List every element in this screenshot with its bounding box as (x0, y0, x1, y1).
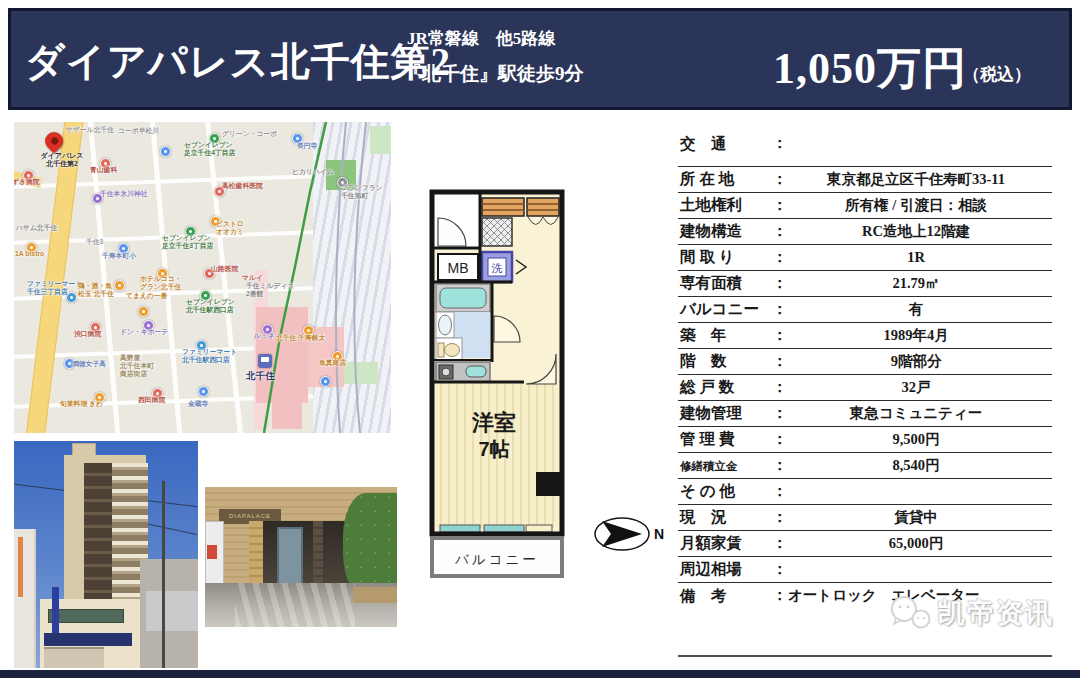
row-label: 周辺相場 (678, 559, 772, 580)
row-value: 1989年4月 (786, 326, 1052, 345)
row-label: 月額家賃 (678, 533, 772, 554)
entrance-opening (257, 521, 357, 583)
row-value: 32戸 (786, 378, 1052, 397)
row-label: 築 年 (678, 325, 772, 346)
row-value: 9階部分 (786, 352, 1052, 371)
vending-machine-panel (207, 545, 217, 559)
property-map-label: ダイアパレス 北千住第2 (30, 152, 94, 169)
planter-wall (353, 587, 397, 603)
balcony-label: バルコニー (454, 552, 539, 567)
map-poi-pin (320, 376, 331, 387)
map-poi-label: 旬菜料理 きわ (60, 400, 103, 408)
brick-pillar (249, 521, 263, 583)
entrance-photo: DIAPALACE (205, 487, 397, 627)
map-poi-label: ドン・キホーテ (120, 328, 168, 336)
row-value: 東急コミュニティー (786, 404, 1052, 423)
map-poi-label: グリーン・コーポ (222, 130, 277, 138)
shop-sign (44, 633, 132, 646)
flyer-page: ダイアパレス北千住第2 JR常磐線 他5路線 『北千住』駅徒歩9分 1,050万… (0, 0, 1080, 678)
map-poi-label: ホテルココ・ グラン北千住 (140, 275, 182, 291)
map-poi-label: 西田病院 (138, 396, 165, 404)
table-row: 専有面積：21.79㎡ (678, 271, 1052, 297)
table-row: 修繕積立金：8,540円 (678, 453, 1052, 479)
building-exterior-photo (14, 441, 198, 668)
glass-door (277, 527, 303, 585)
row-colon: ： (772, 430, 786, 449)
row-value: 有 (786, 300, 1052, 319)
table-row: 建物構造：RC造地上12階建 (678, 219, 1052, 245)
map-poi-pin (160, 146, 171, 157)
property-title: ダイアパレス北千住第2 (25, 35, 451, 89)
map-poi-label: 千住3 (86, 238, 103, 246)
row-colon: ： (772, 456, 786, 475)
map-poi-label: セブンイレブン 足立千住4丁目店 (184, 141, 235, 157)
map-poi-label: 青山歯科 (90, 166, 117, 174)
map-poi-label: ビストロ オオカミ (216, 220, 244, 236)
row-colon: ： (772, 404, 786, 423)
map-poi-label: フランフラン 千住旭町 (341, 184, 383, 200)
tax-note: （税込） (963, 63, 1031, 86)
station-name-label: 北千住 (246, 370, 275, 383)
construction-fence (146, 591, 198, 631)
compass-n-label: N (654, 526, 664, 542)
map-poi-label: 魚真商店 (319, 359, 346, 367)
floor-plan: MB 洗 洋室 7帖 (424, 184, 570, 586)
watermark-text: 凯帝资讯 (938, 595, 1054, 631)
row-label: 交 通 (678, 134, 772, 155)
location-map: ずき病院青山歯科セブンイレブン 足立千住4丁目店長円寺高松歯科医院ヒカリハイム千… (14, 122, 391, 433)
shop-front (44, 647, 104, 668)
map-poi-label: 長円寺 (297, 142, 317, 150)
row-colon: ： (772, 134, 786, 153)
row-label: 間 取 り (678, 247, 772, 268)
map-poi-label: 山路医院 (211, 265, 238, 273)
row-colon: ： (772, 352, 786, 371)
table-row: 周辺相場： (678, 557, 1052, 583)
property-spec-table: 交 通：所 在 地：東京都足立区千住寿町33-11土地権利：所有権 / 引渡日：… (678, 128, 1052, 655)
row-label: 土地権利 (678, 195, 772, 216)
map-poi-pin (114, 280, 125, 291)
row-value: 所有権 / 引渡日：相談 (786, 196, 1052, 215)
table-row: 現 況：賃貸中 (678, 505, 1052, 531)
page-bottom-border (0, 670, 1080, 678)
rail-line-text: JR常磐線 他5路線 (407, 27, 555, 50)
lower-building-windows (48, 609, 124, 623)
map-poi-pin (138, 306, 149, 317)
row-label: 専有面積 (678, 273, 772, 294)
table-row: バルコニー：有 (678, 297, 1052, 323)
table-row: 建物管理：東急コミュニティー (678, 401, 1052, 427)
row-value: 8,540円 (786, 456, 1052, 475)
row-colon: ： (772, 222, 786, 241)
row-colon: ： (772, 300, 786, 319)
table-row: 階 数：9階部分 (678, 349, 1052, 375)
map-poi-label: セブンイレブン 北千住駅西口店 (186, 298, 235, 314)
row-colon: ： (772, 326, 786, 345)
map-poi-label: ずき病院 (14, 178, 40, 186)
map-poi-label: セブンイレブン 足立千住3丁目店 (162, 234, 213, 250)
header-band: ダイアパレス北千住第2 JR常磐線 他5路線 『北千住』駅徒歩9分 1,050万… (8, 8, 1072, 110)
row-value: 1R (786, 249, 1052, 266)
row-colon: ： (772, 508, 786, 527)
row-label: バルコニー (678, 299, 772, 320)
shop-banner (52, 587, 59, 639)
row-colon: ： (772, 378, 786, 397)
watermark: 凯帝资讯 (888, 594, 1054, 632)
map-poi-label: コーポ早松川 (118, 127, 159, 135)
row-label: 修繕積立金 (678, 457, 772, 474)
chat-bubbles-icon (888, 594, 934, 632)
tower-balcony-shadow (84, 463, 112, 605)
map-poi-label: 1A bistro (15, 250, 44, 258)
room-size-label: 7帖 (478, 438, 509, 460)
map-poi-label: 高松歯科医院 (222, 182, 263, 190)
row-colon: ： (772, 534, 786, 553)
table-row: 所 在 地：東京都足立区千住寿町33-11 (678, 167, 1052, 193)
washer-label: 洗 (492, 262, 503, 274)
mb-label: MB (448, 260, 469, 276)
pavement-tiles (235, 583, 355, 627)
row-label: 総 戸 数 (678, 377, 772, 398)
inner-pillar (313, 521, 323, 583)
utility-pole (162, 481, 165, 668)
row-label: 現 況 (678, 507, 772, 528)
table-row: 交 通： (678, 128, 1052, 167)
row-colon: ： (772, 560, 786, 579)
map-poi-label: 潤徳女子高 (72, 360, 106, 368)
map-poi-label: ルミネ (254, 332, 275, 340)
station-walk-text: 『北千住』駅徒歩9分 (403, 61, 584, 87)
table-row: 総 戸 数：32戸 (678, 375, 1052, 401)
map-poi-label: 北千住 千寿銀太 (276, 334, 325, 342)
row-value: 9,500円 (786, 430, 1052, 449)
map-poi-label: ファミリーマート 北千住駅西口店 (182, 348, 237, 364)
row-label: 備 考 (678, 586, 772, 607)
table-end-line (678, 655, 1052, 657)
train-station-icon (258, 354, 272, 368)
row-colon: ： (772, 248, 786, 267)
price-text: 1,050万円 (773, 39, 967, 98)
row-value: 65,000円 (786, 534, 1052, 553)
map-poi-label: てまえの一番 (126, 292, 167, 300)
row-colon: ： (772, 170, 786, 189)
table-row: そ の 他： (678, 479, 1052, 505)
table-row: 土地権利：所有権 / 引渡日：相談 (678, 193, 1052, 219)
map-poi-label: 金蔵寺 (188, 400, 208, 408)
row-label: 管 理 費 (678, 429, 772, 450)
table-row: 間 取 り：1R (678, 245, 1052, 271)
map-poi-label: ヒカリハイム (292, 168, 334, 176)
row-label: 階 数 (678, 351, 772, 372)
map-poi-pin (198, 386, 209, 397)
row-label: 建物管理 (678, 403, 772, 424)
neighbor-building-stripe (18, 537, 23, 597)
row-value: 21.79㎡ (786, 274, 1052, 293)
map-poi-label: 千寿本町小 (102, 252, 136, 260)
table-row: 管 理 費：9,500円 (678, 427, 1052, 453)
map-poi-label: マルイ (242, 274, 263, 282)
row-colon: ： (772, 196, 786, 215)
map-poi-label: ファミリーマート 千住三丁目店 (27, 280, 82, 296)
row-label: 所 在 地 (678, 169, 772, 190)
map-poi-label: 鶏・酒・魚 松玉 北千住 (78, 282, 114, 298)
north-compass: N (590, 510, 670, 556)
row-label: そ の 他 (678, 481, 772, 502)
table-row: 月額家賃：65,000円 (678, 531, 1052, 557)
map-poi-label: 千住ミルディス 2番館 (246, 282, 294, 298)
row-value: 東京都足立区千住寿町33-11 (786, 170, 1052, 189)
row-colon: ： (772, 586, 786, 605)
room-label: 洋室 (471, 410, 516, 435)
row-colon: ： (772, 274, 786, 293)
row-value: 賃貸中 (786, 508, 1052, 527)
map-poi-label: 高野屋 北千住本町 商店街店 (120, 354, 154, 378)
row-value: RC造地上12階建 (786, 222, 1052, 241)
map-poi-label: サザール北千住 (66, 126, 114, 134)
map-poi-label: 渋口病院 (74, 330, 101, 338)
row-label: 建物構造 (678, 221, 772, 242)
map-poi-label: 千住本氷川神社 (100, 190, 148, 198)
row-colon: ： (772, 482, 786, 501)
map-poi-label: ハサム北千住 (16, 224, 57, 232)
table-row: 築 年：1989年4月 (678, 323, 1052, 349)
